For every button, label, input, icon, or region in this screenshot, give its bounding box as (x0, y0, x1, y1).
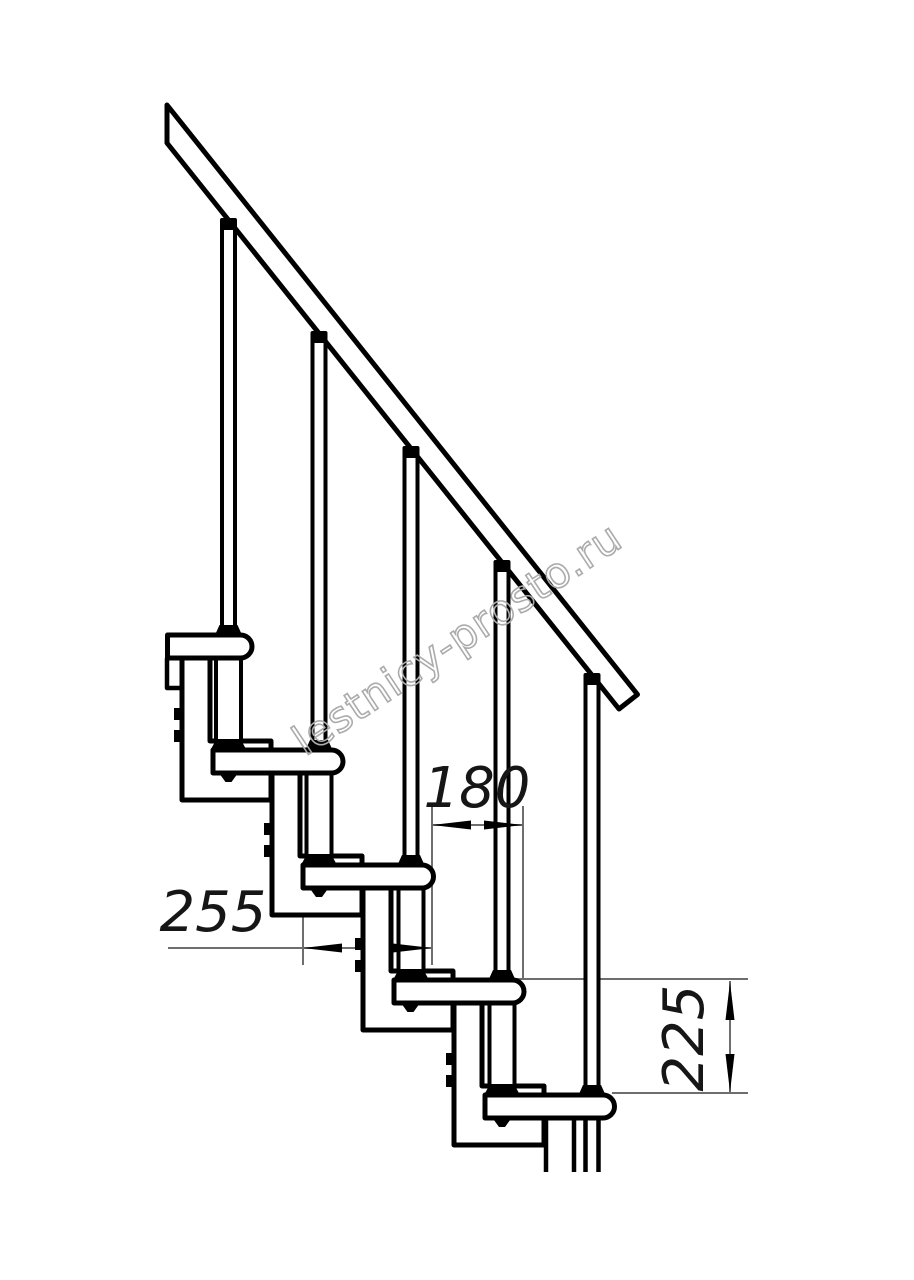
tread-3 (303, 865, 434, 888)
arrow-up-icon (726, 982, 735, 1020)
sleeve-4 (490, 1003, 515, 1095)
tread-5 (485, 1095, 615, 1118)
staircase-technical-drawing: 180 255 225 lestnicy-prosto.ru (0, 0, 914, 1280)
sleeve-5-cutoff (586, 1118, 599, 1172)
arrow-down-icon (726, 1054, 735, 1092)
baluster-1 (215, 219, 242, 635)
sleeve-2 (307, 773, 332, 865)
handrail (167, 105, 638, 709)
dimension-225: 225 (652, 982, 735, 1092)
module-5-cutoff (546, 1118, 574, 1172)
arrow-left-icon (432, 821, 471, 830)
dimension-180: 180 (424, 756, 531, 830)
sleeve-3 (399, 888, 424, 980)
sleeve-1 (216, 658, 241, 750)
dimension-label-255: 255 (160, 880, 267, 945)
baluster-5 (579, 674, 606, 1095)
dimension-label-225: 225 (652, 985, 717, 1092)
tread-1 (168, 635, 253, 658)
arrow-left-icon (303, 944, 342, 953)
baluster-2 (306, 332, 333, 750)
dimension-label-180: 180 (424, 756, 531, 821)
drawing-svg: 180 255 225 lestnicy-prosto.ru (0, 0, 914, 1280)
tread-4 (394, 980, 524, 1003)
